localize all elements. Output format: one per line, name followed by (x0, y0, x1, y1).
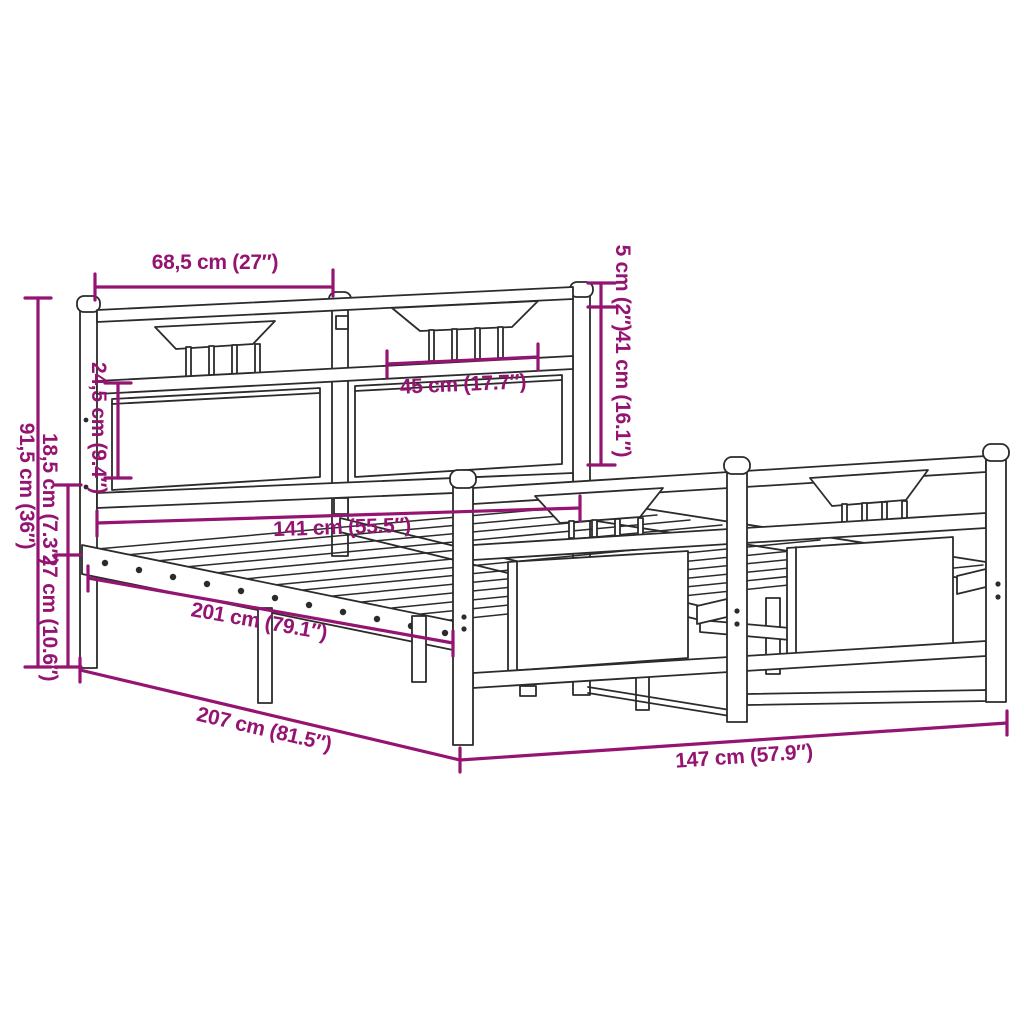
dim-label-headboard-section-width: 68,5 cm (27″) (152, 251, 278, 275)
dim-label-post-cap-offset: 5 cm (2″) (610, 245, 634, 332)
diagram-canvas (0, 0, 1024, 1024)
dim-label-headboard-drop-height: 41 cm (16.1″) (610, 331, 634, 457)
dim-label-under-bed-clearance: 27 cm (10.6″) (37, 555, 61, 681)
dim-label-headboard-total-height: 91,5 cm (36″) (14, 423, 38, 549)
dim-label-headboard-panel-height: 24,5 cm (9.4″) (86, 362, 110, 494)
bed-frame-dimension-diagram: 68,5 cm (27″) 5 cm (2″) 41 cm (16.1″) 45… (0, 0, 1024, 1024)
dim-label-slat-surface-width: 141 cm (55.5″) (273, 514, 411, 542)
dim-label-rail-to-floor-upper: 18,5 cm (7.3″) (37, 433, 61, 565)
